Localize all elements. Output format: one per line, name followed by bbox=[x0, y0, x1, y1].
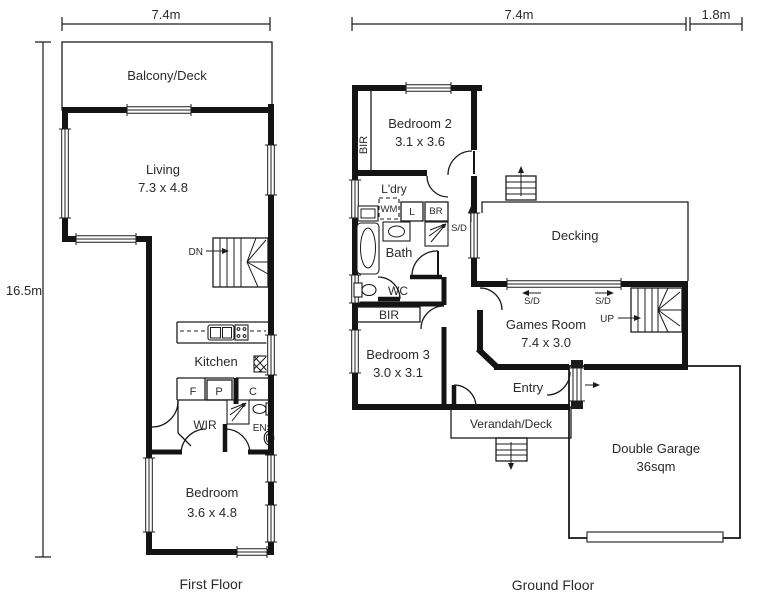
games-room-label: Games Room bbox=[506, 317, 586, 332]
window bbox=[265, 505, 277, 542]
bedroom3-door-arc bbox=[421, 306, 444, 329]
garage-size-label: 36sqm bbox=[636, 459, 675, 474]
sd-bath-label: S/D bbox=[451, 223, 467, 234]
window bbox=[76, 233, 136, 245]
wir-entry-door-arc bbox=[152, 401, 178, 427]
wir-label: WIR bbox=[193, 418, 217, 432]
stairs-up-label: UP bbox=[600, 314, 614, 325]
sliding-door-main bbox=[507, 278, 621, 290]
broom-cupboard: BR bbox=[425, 202, 448, 221]
verandah-label: Verandah/Deck bbox=[470, 417, 553, 431]
decking-label: Decking bbox=[552, 228, 599, 243]
window bbox=[59, 129, 71, 218]
balcony-slider bbox=[127, 104, 191, 116]
bath-door-arc bbox=[412, 251, 438, 275]
laundry-label: L'dry bbox=[381, 182, 407, 196]
garage-label: Double Garage bbox=[612, 441, 700, 456]
verandah-steps bbox=[496, 438, 527, 470]
ff-dimension-top: 7.4m bbox=[62, 7, 270, 31]
bedroom-label: Bedroom bbox=[186, 485, 239, 500]
fridge-label: F bbox=[190, 386, 197, 398]
stairs-up: UP bbox=[600, 288, 682, 332]
ens-door-arc bbox=[226, 429, 250, 452]
shower bbox=[425, 222, 448, 246]
laundry: WM L BR L'dry bbox=[358, 91, 448, 221]
garage-door bbox=[587, 532, 723, 542]
bedroom2-door-arc bbox=[448, 151, 472, 175]
window bbox=[265, 145, 277, 195]
stairs-down: DN bbox=[189, 238, 268, 287]
toilet bbox=[354, 283, 376, 297]
kitchen-stove bbox=[235, 325, 248, 340]
bedroom2-size-label: 3.1 x 3.6 bbox=[395, 134, 445, 149]
dn-arrow-icon bbox=[222, 248, 229, 254]
cupboard-label: C bbox=[249, 386, 257, 398]
entry-label: Entry bbox=[513, 380, 544, 395]
broom-label: BR bbox=[429, 206, 442, 217]
ensuite-room: ENS bbox=[226, 400, 274, 452]
decking-steps bbox=[506, 166, 536, 200]
decking: Decking bbox=[482, 166, 688, 281]
sliding-door-side bbox=[468, 213, 480, 258]
living-label: Living bbox=[146, 162, 180, 177]
bedroom3-bir: BIR bbox=[357, 307, 420, 322]
sd-left-label: S/D bbox=[524, 296, 540, 307]
wir-door-arc bbox=[181, 429, 206, 452]
kitchen: Kitchen bbox=[177, 322, 268, 372]
front-door-jamb bbox=[571, 360, 583, 368]
stairs-dn-label: DN bbox=[189, 247, 203, 258]
sd-right-label: S/D bbox=[595, 296, 611, 307]
pantry-label: P bbox=[215, 386, 222, 398]
verandah-deck: Verandah/Deck bbox=[451, 407, 571, 470]
bir-bed3-label: BIR bbox=[379, 308, 399, 322]
window bbox=[406, 82, 451, 94]
bath-label: Bath bbox=[386, 245, 413, 260]
bedroom-size-label: 3.6 x 4.8 bbox=[187, 505, 237, 520]
kitchen-label: Kitchen bbox=[194, 354, 237, 369]
ff-dimension-left: 16.5m bbox=[6, 42, 51, 557]
first-floor-plan: 7.4m 16.5m Balcony/Deck DN bbox=[6, 7, 277, 592]
front-door-arrow-icon bbox=[593, 382, 600, 388]
first-floor-title: First Floor bbox=[180, 576, 243, 592]
gf-dim-main-label: 7.4m bbox=[505, 7, 534, 22]
floor-plan-drawing: 7.4m 16.5m Balcony/Deck DN bbox=[0, 0, 768, 600]
ground-floor-plan: 7.4m 1.8m Double Garage 36sqm Verandah/D… bbox=[349, 7, 742, 593]
bir-bed2-label: BIR bbox=[358, 136, 370, 154]
kitchen-hatch-unit bbox=[254, 356, 268, 372]
window bbox=[349, 330, 361, 373]
bedroom2-label: Bedroom 2 bbox=[388, 116, 452, 131]
wm-label: WM bbox=[381, 204, 398, 215]
washing-machine: WM bbox=[379, 198, 399, 219]
entry-side-door-arc bbox=[454, 385, 476, 407]
games-room-door-arc bbox=[480, 288, 502, 310]
bedroom3-size-label: 3.0 x 3.1 bbox=[373, 365, 423, 380]
bathtub bbox=[357, 223, 379, 274]
gf-dimension-top-garage: 1.8m bbox=[690, 7, 742, 31]
balcony-deck: Balcony/Deck bbox=[62, 42, 272, 110]
ff-dim-left-label: 16.5m bbox=[6, 283, 42, 298]
cupboard-row: F P C bbox=[177, 378, 271, 400]
bathroom: Bath bbox=[357, 222, 448, 274]
balcony-label: Balcony/Deck bbox=[127, 68, 207, 83]
entry-front-door-arc bbox=[547, 372, 570, 395]
double-garage: Double Garage 36sqm bbox=[569, 366, 740, 542]
window bbox=[143, 458, 155, 532]
ff-dim-top-label: 7.4m bbox=[152, 7, 181, 22]
hall-door-arc bbox=[427, 176, 448, 197]
laundry-trough bbox=[358, 206, 378, 221]
wir-room: WIR bbox=[152, 400, 217, 452]
front-door bbox=[569, 368, 585, 401]
gf-dimension-top-main: 7.4m bbox=[352, 7, 686, 31]
gf-dim-garage-label: 1.8m bbox=[702, 7, 731, 22]
basin bbox=[383, 222, 410, 241]
linen-cupboard: L bbox=[401, 202, 423, 221]
ground-floor-title: Ground Floor bbox=[512, 577, 595, 593]
living-size-label: 7.3 x 4.8 bbox=[138, 180, 188, 195]
bedroom3-label: Bedroom 3 bbox=[366, 347, 430, 362]
floor-plan-page: 7.4m 16.5m Balcony/Deck DN bbox=[0, 0, 768, 600]
front-door-jamb bbox=[571, 401, 583, 409]
games-room-size-label: 7.4 x 3.0 bbox=[521, 335, 571, 350]
linen-label: L bbox=[409, 207, 415, 218]
window bbox=[265, 335, 277, 375]
window bbox=[237, 546, 267, 558]
window bbox=[265, 455, 277, 482]
